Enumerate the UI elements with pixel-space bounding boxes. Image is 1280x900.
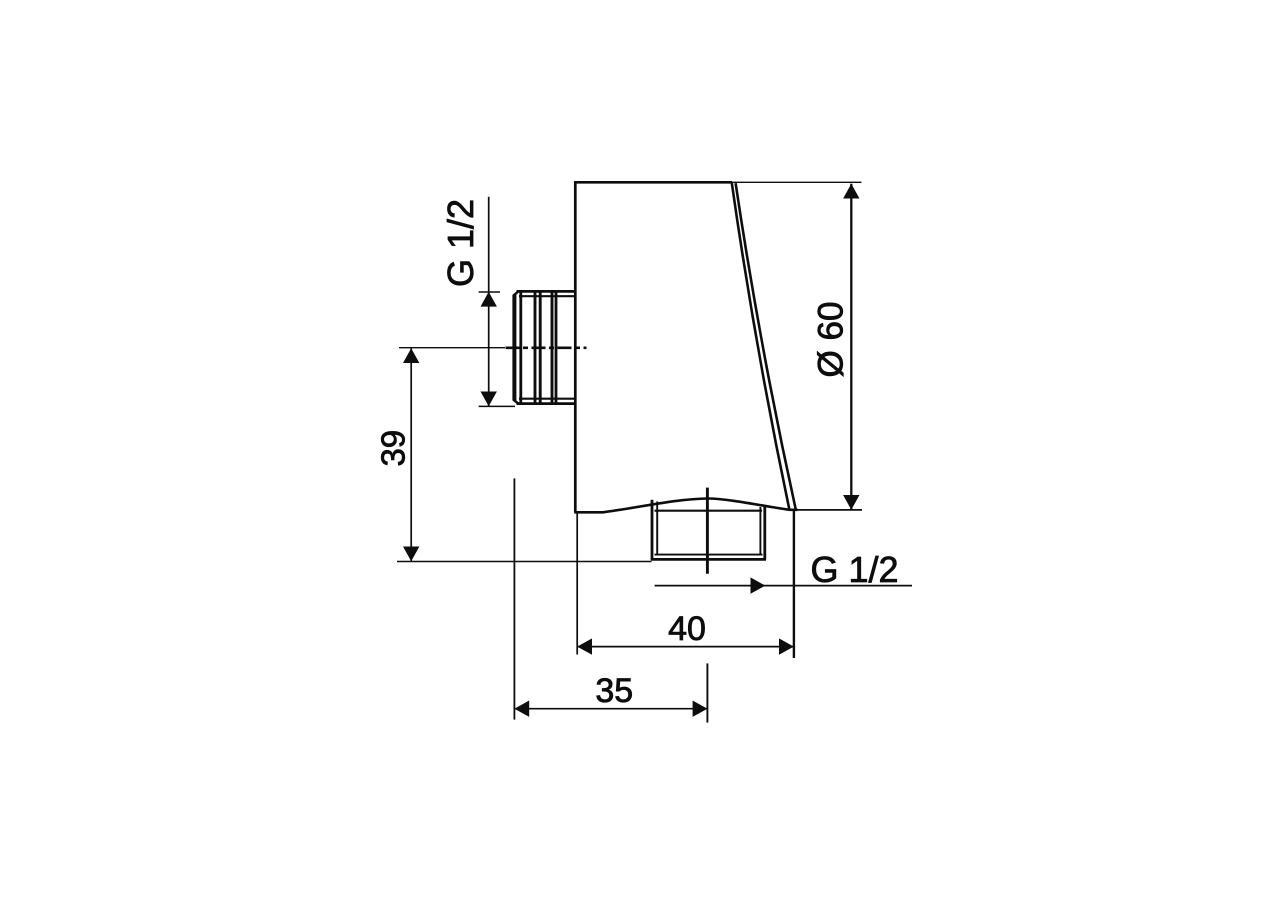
- svg-text:Ø 60: Ø 60: [812, 302, 851, 378]
- svg-text:35: 35: [595, 672, 633, 710]
- svg-text:G 1/2: G 1/2: [811, 549, 899, 590]
- svg-text:40: 40: [668, 610, 706, 648]
- svg-text:G 1/2: G 1/2: [440, 199, 481, 287]
- svg-text:39: 39: [375, 430, 412, 467]
